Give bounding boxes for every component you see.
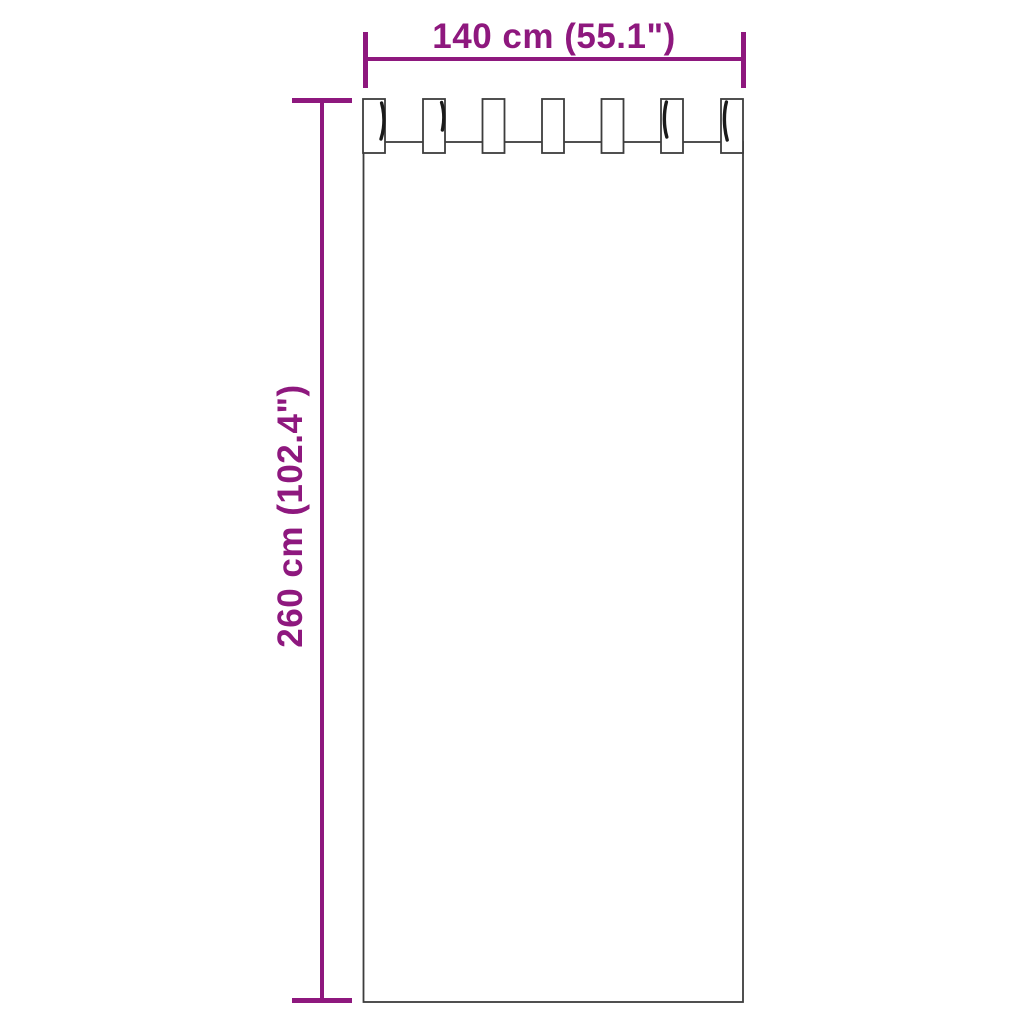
height-dimension-line bbox=[320, 100, 324, 1000]
width-dimension-line bbox=[363, 57, 746, 61]
curtain-tab-5 bbox=[602, 99, 624, 153]
width-dimension-label: 140 cm (55.1") bbox=[432, 17, 675, 56]
curtain-drawing bbox=[363, 99, 743, 1002]
curtain-tab-3 bbox=[483, 99, 505, 153]
height-dimension-label: 260 cm (102.4") bbox=[271, 384, 310, 647]
curtain-panel bbox=[364, 142, 744, 1002]
diagram-canvas: 140 cm (55.1") 260 cm (102.4") bbox=[0, 0, 1024, 1024]
curtain-tab-4 bbox=[542, 99, 564, 153]
curtain-dimension-diagram: 140 cm (55.1") 260 cm (102.4") bbox=[0, 0, 1024, 1024]
